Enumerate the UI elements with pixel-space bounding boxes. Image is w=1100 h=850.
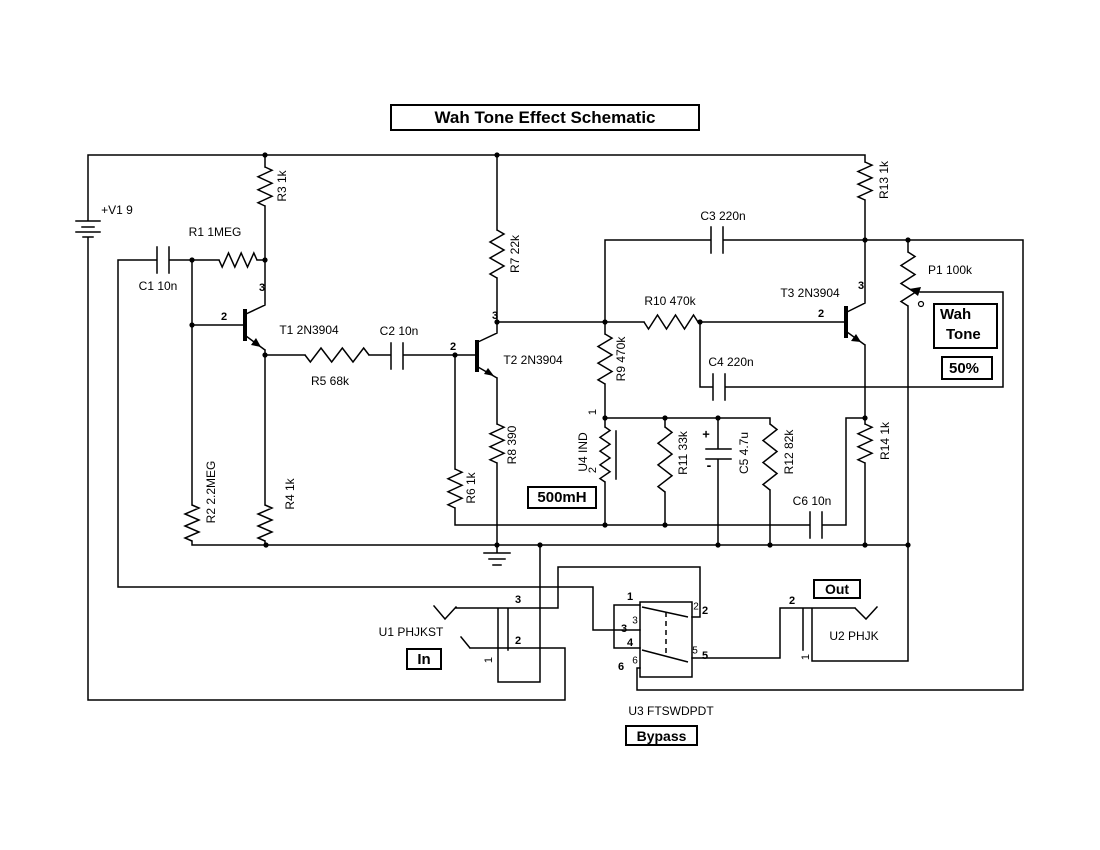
- label-r2: R2 2.2MEG: [204, 461, 218, 524]
- pot-position-value: 50%: [949, 360, 979, 377]
- label-r10: R10 470k: [644, 294, 695, 308]
- pin-u3-3: 3: [621, 623, 627, 635]
- label-c2: C2 10n: [380, 324, 419, 338]
- in-jack-label-box: In: [406, 648, 442, 670]
- label-r5: R5 68k: [311, 374, 349, 388]
- label-p1: P1 100k: [928, 263, 972, 277]
- label-t1: T1 2N3904: [279, 323, 338, 337]
- c5-plus-sign: +: [702, 427, 710, 442]
- label-t3: T3 2N3904: [780, 286, 839, 300]
- pin-u2-2: 2: [789, 595, 795, 607]
- junction-dot: [662, 415, 667, 420]
- junction-dot: [189, 322, 194, 327]
- label-t2: T2 2N3904: [503, 353, 562, 367]
- pin-u1-1: 1: [483, 657, 495, 663]
- junction-dot: [262, 152, 267, 157]
- label-c4: C4 220n: [708, 355, 753, 369]
- pin-t2-base: 2: [450, 341, 456, 353]
- pot-name-line1: Wah: [935, 305, 996, 325]
- pin-u3-5b: 5: [692, 646, 698, 657]
- label-c5: C5 4.7u: [737, 432, 751, 474]
- page-title-text: Wah Tone Effect Schematic: [434, 108, 655, 128]
- junction-dot: [602, 319, 607, 324]
- c5-minus-sign: -: [707, 457, 712, 473]
- label-r14: R14 1k: [878, 422, 892, 460]
- label-r7: R7 22k: [508, 235, 522, 273]
- pin-u3-2b: 2: [693, 602, 699, 613]
- junction-dot: [494, 542, 499, 547]
- pot-wiper-terminal: [919, 302, 924, 307]
- page-title: Wah Tone Effect Schematic: [390, 104, 700, 131]
- junction-dot: [602, 522, 607, 527]
- pin-u1-2: 2: [515, 635, 521, 647]
- junction-dot: [905, 542, 910, 547]
- junction-dot: [452, 352, 457, 357]
- pin-t1-base: 2: [221, 311, 227, 323]
- pin-u2-1: 1: [800, 654, 812, 660]
- junction-dot: [715, 415, 720, 420]
- pin-u3-3b: 3: [632, 616, 638, 627]
- pin-u3-5: 5: [702, 650, 708, 662]
- pin-u3-2: 2: [702, 605, 708, 617]
- pin-t2-collector: 3: [492, 310, 498, 322]
- label-u1: U1 PHJKST: [379, 625, 444, 639]
- pot-name-box[interactable]: Wah Tone: [933, 303, 998, 349]
- label-c1: C1 10n: [139, 279, 178, 293]
- label-r6: R6 1k: [464, 472, 478, 503]
- pin-t3-base: 2: [818, 308, 824, 320]
- inductance-value-box: 500mH: [527, 486, 597, 509]
- pin-t1-collector: 3: [259, 282, 265, 294]
- bypass-switch-label: Bypass: [637, 728, 687, 744]
- pin-u4-2: 2: [587, 467, 599, 473]
- label-r3: R3 1k: [275, 170, 289, 201]
- junction-dot: [602, 415, 607, 420]
- pin-u3-4: 4: [627, 637, 633, 649]
- pin-u3-6b: 6: [632, 656, 638, 667]
- label-u4: U4 IND: [576, 432, 590, 471]
- label-u2: U2 PHJK: [829, 629, 878, 643]
- label-r4: R4 1k: [283, 478, 297, 509]
- pin-u3-1: 1: [627, 591, 633, 603]
- inductance-value: 500mH: [537, 489, 586, 506]
- junction-dot: [862, 415, 867, 420]
- out-jack-label: Out: [825, 581, 849, 597]
- pin-t3-collector: 3: [858, 280, 864, 292]
- bypass-switch-label-box[interactable]: Bypass: [625, 725, 698, 746]
- label-v1-battery: +V1 9: [101, 203, 133, 217]
- schematic-page: Wah Tone Effect Schematic Wah Tone 50% 5…: [0, 0, 1100, 850]
- junction-dot: [262, 352, 267, 357]
- footswitch-contact-arms: [642, 607, 688, 662]
- label-r13: R13 1k: [877, 161, 891, 199]
- label-u3: U3 FTSWDPDT: [628, 704, 713, 718]
- label-r11: R11 33k: [676, 431, 690, 475]
- junction-dot: [697, 319, 702, 324]
- junction-dot: [494, 152, 499, 157]
- in-jack-label: In: [417, 651, 430, 668]
- pin-u3-6: 6: [618, 661, 624, 673]
- label-c6: C6 10n: [793, 494, 832, 508]
- junction-dot: [905, 237, 910, 242]
- junction-dot: [862, 237, 867, 242]
- junction-dot: [862, 542, 867, 547]
- emitter-arrows: [251, 287, 921, 376]
- junction-dot: [715, 542, 720, 547]
- junction-dot: [767, 542, 772, 547]
- junction-dot: [262, 257, 267, 262]
- pin-u1-3: 3: [515, 594, 521, 606]
- pin-u4-1: 1: [587, 409, 599, 415]
- junction-dot: [189, 257, 194, 262]
- label-r1: R1 1MEG: [189, 225, 242, 239]
- label-r12: R12 82k: [782, 430, 796, 475]
- label-c3: C3 220n: [700, 209, 745, 223]
- junction-dot: [263, 542, 268, 547]
- out-jack-label-box: Out: [813, 579, 861, 599]
- label-r8: R8 390: [505, 426, 519, 465]
- junction-dot: [537, 542, 542, 547]
- label-r9: R9 470k: [614, 337, 628, 382]
- pot-position-box[interactable]: 50%: [941, 356, 993, 380]
- junction-dot: [662, 522, 667, 527]
- pot-name-line2: Tone: [935, 325, 996, 345]
